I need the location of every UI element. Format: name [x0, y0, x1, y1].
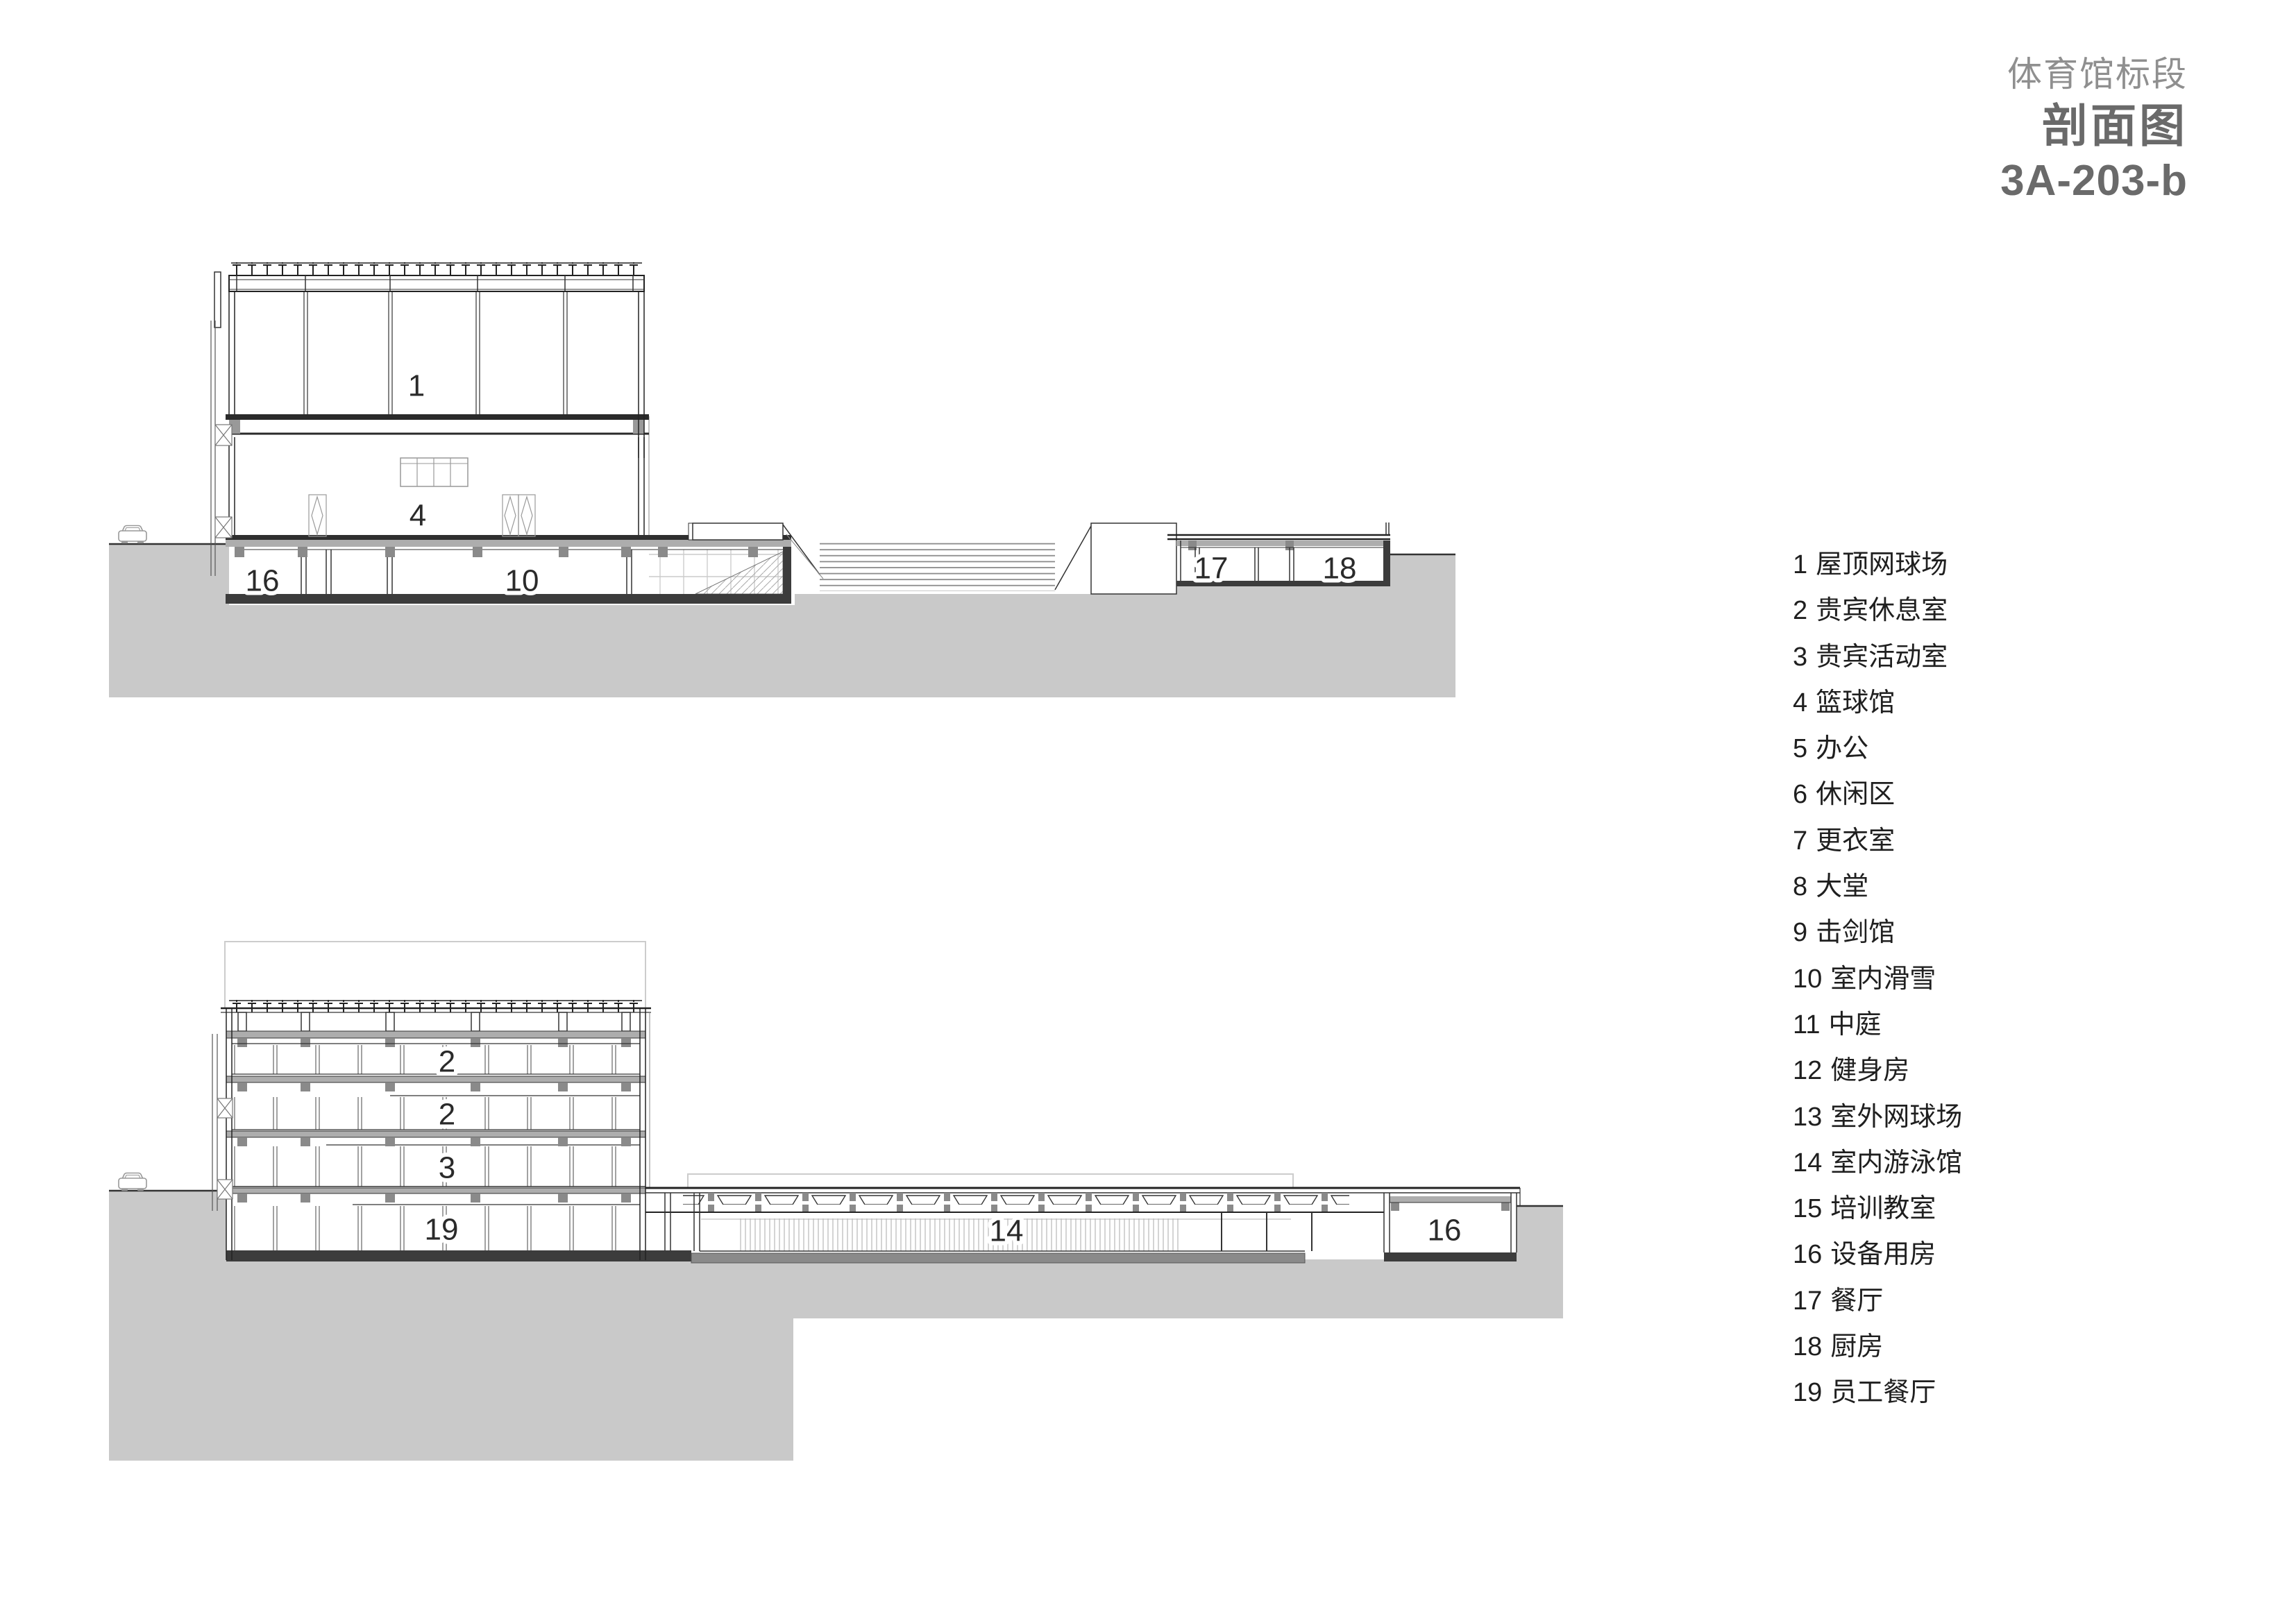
car-icon — [119, 526, 146, 544]
legend-item-number: 11 — [1793, 1002, 1820, 1048]
legend-item-label: 设备用房 — [1830, 1240, 1936, 1269]
legend-item-label: 中庭 — [1828, 1010, 1881, 1039]
legend-item-number: 13 — [1793, 1094, 1822, 1140]
roof-stub-columns — [238, 1012, 630, 1031]
legend-item-label: 室外网球场 — [1830, 1103, 1962, 1132]
section-top-drawing: 1 4 16 10 17 18 — [109, 262, 1455, 697]
legend-item: 9击剑馆 — [1793, 910, 1962, 955]
legend-item-number: 15 — [1793, 1186, 1822, 1232]
room-label-17: 17 — [1195, 552, 1229, 586]
section-bottom-drawing: 2 2 3 19 14 16 — [109, 942, 1563, 1461]
roof-fence-posts — [231, 262, 642, 275]
left-screen-wall — [212, 1034, 217, 1211]
legend-item: 3贵宾活动室 — [1793, 634, 1962, 680]
legend-item-label: 休闲区 — [1816, 780, 1895, 809]
room-label-2a: 2 — [439, 1045, 455, 1079]
room-label-10: 10 — [505, 564, 539, 598]
legend-item: 4篮球馆 — [1793, 680, 1962, 726]
ghost-volume-outline — [688, 1174, 1293, 1188]
retaining-wall-right — [1091, 523, 1176, 594]
legend-item-label: 健身房 — [1830, 1056, 1909, 1085]
clerestory-window — [400, 458, 468, 486]
legend-item-label: 室内滑雪 — [1830, 965, 1936, 994]
legend-item: 11中庭 — [1793, 1002, 1962, 1048]
legend-item: 1屋顶网球场 — [1793, 542, 1962, 588]
pool-water-hatch — [737, 1218, 1181, 1251]
legend-item-label: 贵宾休息室 — [1816, 596, 1948, 625]
legend-item-label: 篮球馆 — [1816, 688, 1895, 717]
legend-item-number: 1 — [1793, 542, 1807, 588]
roof-fence-posts — [229, 1000, 642, 1012]
car-icon — [119, 1173, 146, 1191]
room-label-2b: 2 — [439, 1098, 455, 1132]
legend-item-label: 员工餐厅 — [1830, 1378, 1936, 1407]
legend-item-number: 10 — [1793, 956, 1822, 1002]
room-label-4: 4 — [410, 499, 426, 533]
legend-item-number: 17 — [1793, 1278, 1822, 1324]
sheet-canvas: 1 4 16 10 17 18 — [0, 0, 2296, 1623]
legend-item-label: 贵宾活动室 — [1816, 643, 1948, 672]
legend-item-number: 6 — [1793, 772, 1807, 817]
drawing-number: 3A-203-b — [2000, 157, 2188, 205]
legend-item-label: 大堂 — [1816, 872, 1868, 901]
room-label-14: 14 — [990, 1214, 1024, 1248]
legend-item-label: 办公 — [1816, 734, 1868, 763]
left-screen-wall — [211, 321, 215, 576]
drawing-title: 剖面图 — [2000, 100, 2188, 151]
legend: 1屋顶网球场 2贵宾休息室 3贵宾活动室 4篮球馆 5办公 6休闲区 7更衣 — [1793, 542, 1962, 1416]
roof-fins-and-coffers — [683, 1193, 1349, 1212]
title-block: 体育馆标段 剖面图 3A-203-b — [2000, 54, 2188, 205]
ghost-volume-outline — [225, 942, 645, 1008]
legend-item-number: 7 — [1793, 818, 1807, 864]
legend-item: 14室内游泳馆 — [1793, 1140, 1962, 1186]
legend-item-number: 8 — [1793, 864, 1807, 910]
legend-item-number: 3 — [1793, 634, 1807, 680]
legend-item-label: 更衣室 — [1816, 826, 1895, 856]
legend-item-number: 2 — [1793, 588, 1807, 634]
legend-item: 7更衣室 — [1793, 818, 1962, 864]
room-label-1: 1 — [408, 369, 425, 403]
legend-item-number: 12 — [1793, 1048, 1822, 1094]
legend-item-number: 18 — [1793, 1324, 1822, 1370]
basement-slab — [226, 1250, 691, 1261]
legend-item: 19员工餐厅 — [1793, 1370, 1962, 1416]
wall-brackets — [217, 1098, 233, 1199]
legend-item-label: 培训教室 — [1830, 1194, 1936, 1223]
legend-item-number: 4 — [1793, 680, 1807, 726]
legend-item-number: 16 — [1793, 1232, 1822, 1277]
legend-item-number: 9 — [1793, 910, 1807, 955]
legend-item: 10室内滑雪 — [1793, 956, 1962, 1002]
room-label-16: 16 — [246, 564, 280, 598]
legend-item: 18厨房 — [1793, 1324, 1962, 1370]
room-label-3: 3 — [439, 1151, 455, 1185]
legend-item-label: 餐厅 — [1830, 1286, 1883, 1316]
legend-item: 2贵宾休息室 — [1793, 588, 1962, 634]
legend-item-label: 室内游泳馆 — [1830, 1148, 1962, 1178]
plaza-stairs — [820, 542, 1055, 591]
legend-item-number: 19 — [1793, 1370, 1822, 1416]
legend-item-number: 5 — [1793, 726, 1807, 772]
project-label: 体育馆标段 — [2000, 54, 2188, 94]
legend-item-label: 击剑馆 — [1816, 918, 1895, 947]
room-label-16: 16 — [1428, 1214, 1462, 1248]
legend-item-number: 14 — [1793, 1140, 1822, 1186]
legend-item-label: 屋顶网球场 — [1816, 550, 1948, 579]
legend-item: 12健身房 — [1793, 1048, 1962, 1094]
room-label-19: 19 — [425, 1213, 459, 1247]
legend-item: 13室外网球场 — [1793, 1094, 1962, 1140]
legend-item-label: 厨房 — [1830, 1332, 1883, 1361]
legend-item: 8大堂 — [1793, 864, 1962, 910]
legend-item: 6休闲区 — [1793, 772, 1962, 817]
legend-item: 17餐厅 — [1793, 1278, 1962, 1324]
retaining-wall-left — [693, 523, 783, 540]
room-label-18: 18 — [1323, 552, 1357, 586]
legend-item: 16设备用房 — [1793, 1232, 1962, 1277]
legend-item: 15培训教室 — [1793, 1186, 1962, 1232]
legend-item: 5办公 — [1793, 726, 1962, 772]
pool-basin-slab — [691, 1253, 1305, 1263]
